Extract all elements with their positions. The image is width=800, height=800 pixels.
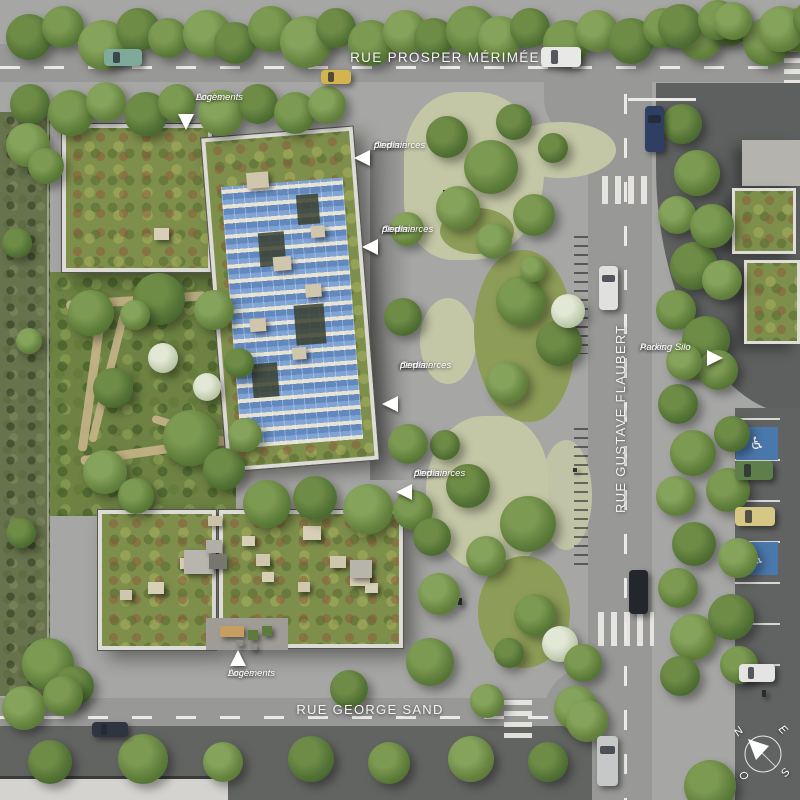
- tree: [10, 84, 50, 124]
- tree: [2, 228, 32, 258]
- tree: [288, 736, 334, 782]
- compass-rose: N E S O: [738, 729, 788, 779]
- tree: [486, 362, 528, 404]
- roof-void: [296, 193, 320, 225]
- tree: [496, 104, 532, 140]
- tree: [658, 4, 702, 48]
- tree: [343, 484, 393, 534]
- rooftop-structure: [206, 540, 222, 553]
- rooftop-structure: [292, 347, 307, 360]
- lane-dash-george-sand: [0, 716, 586, 719]
- tree: [466, 536, 506, 576]
- rooftop-structure: [310, 225, 325, 238]
- roof-void: [294, 303, 327, 345]
- access-arrow-icon: [354, 150, 370, 166]
- wheelchair-icon: ♿: [749, 434, 764, 454]
- tree: [662, 104, 702, 144]
- meadow-strip-west: [0, 112, 50, 696]
- crosswalk-george-sand: [504, 700, 532, 742]
- rooftop-structure: [330, 556, 346, 568]
- stop-line: [628, 98, 696, 101]
- tree: [656, 476, 696, 516]
- tree: [193, 373, 221, 401]
- tree: [148, 343, 178, 373]
- tree: [513, 194, 555, 236]
- tree: [708, 594, 754, 640]
- access-arrow-icon: [382, 396, 398, 412]
- rooftop-structure: [303, 526, 321, 540]
- tree: [243, 480, 291, 528]
- street-name-rue-gustave-flaubert: RUE GUSTAVE FLAUBERT: [613, 343, 629, 513]
- tree: [430, 430, 460, 460]
- car: [597, 736, 618, 786]
- tree: [194, 290, 234, 330]
- tree: [6, 518, 36, 548]
- car: [104, 49, 142, 66]
- tree: [406, 638, 454, 686]
- car-windshield: [748, 667, 754, 680]
- building-roof-southwest: [0, 776, 228, 800]
- rooftop-structure: [350, 560, 372, 578]
- access-arrow-icon: [396, 484, 412, 500]
- tree: [120, 300, 150, 330]
- tree: [660, 656, 700, 696]
- tree: [714, 2, 752, 40]
- tree: [28, 740, 72, 784]
- tree: [118, 478, 154, 514]
- rooftop-structure: [220, 626, 244, 637]
- access-arrow-icon: [178, 114, 194, 130]
- tree: [528, 742, 568, 782]
- tree: [238, 84, 278, 124]
- street-name-rue-george-sand: RUE GEORGE SAND: [296, 702, 444, 717]
- tree: [520, 256, 546, 282]
- rooftop-structure: [148, 582, 164, 594]
- street-name-rue-prosper-merimee: RUE PROSPER MÉRIMÉE: [310, 50, 580, 65]
- crosswalk-flaubert-north: [602, 176, 654, 204]
- rooftop-structure: [256, 554, 270, 566]
- tree: [658, 568, 698, 608]
- car-windshield: [101, 724, 107, 735]
- tree: [418, 573, 460, 615]
- rooftop-structure: [249, 318, 266, 332]
- tree: [672, 522, 716, 566]
- car: [321, 70, 351, 84]
- car-windshield: [744, 464, 751, 477]
- building-southwest-green-roof: [98, 510, 216, 650]
- silo-deck: [742, 140, 800, 186]
- car-windshield: [648, 115, 661, 122]
- car: [599, 266, 618, 310]
- tree: [28, 148, 64, 184]
- roof-void: [251, 362, 280, 398]
- crosswalk-flaubert-south: [598, 612, 654, 646]
- tree: [538, 133, 568, 163]
- car: [645, 106, 664, 152]
- tree: [308, 86, 346, 124]
- tree: [388, 424, 428, 464]
- access-arrow-icon: [362, 239, 378, 255]
- tree: [93, 368, 133, 408]
- tree: [702, 260, 742, 300]
- access-label-line: pied: [400, 360, 418, 372]
- car: [92, 722, 128, 737]
- tree: [86, 82, 126, 122]
- building-northwest-green-roof: [62, 124, 212, 272]
- access-label-line: Parking Silo: [640, 342, 691, 354]
- tree: [500, 496, 556, 552]
- rooftop-structure: [154, 228, 169, 240]
- tree: [536, 320, 582, 366]
- access-label-line: Logements: [196, 92, 243, 104]
- tree: [718, 538, 758, 578]
- car: [735, 507, 775, 526]
- tree: [464, 140, 518, 194]
- tree: [684, 760, 736, 800]
- solar-panel-array: [221, 177, 363, 448]
- tree: [436, 186, 480, 230]
- tree: [426, 116, 468, 158]
- tree: [43, 676, 83, 716]
- silo-green-roof: [744, 260, 800, 344]
- access-arrow-icon: [707, 350, 723, 366]
- tree: [203, 448, 245, 490]
- tree: [293, 476, 337, 520]
- rooftop-structure: [262, 572, 274, 582]
- rooftop-structure: [120, 590, 132, 600]
- tree: [470, 684, 504, 718]
- rooftop-structure: [273, 256, 292, 271]
- tree: [714, 416, 750, 452]
- rooftop-structure: [248, 630, 258, 640]
- tree: [16, 328, 42, 354]
- rooftop-structure: [305, 284, 322, 298]
- car-windshield: [328, 72, 333, 82]
- tree: [203, 742, 243, 782]
- tree: [496, 276, 546, 326]
- access-label-line: pied: [414, 468, 432, 480]
- tree: [494, 638, 524, 668]
- lane-dash-merimee: [0, 66, 782, 69]
- tree: [384, 298, 422, 336]
- tree: [564, 644, 602, 682]
- car-windshield: [745, 510, 752, 523]
- tree: [148, 18, 188, 58]
- tree: [224, 348, 254, 378]
- tree: [476, 223, 512, 259]
- rooftop-structure: [208, 516, 222, 526]
- rooftop-structure: [236, 640, 243, 646]
- car-windshield: [600, 746, 615, 754]
- tree: [670, 430, 716, 476]
- car: [735, 461, 773, 480]
- tree: [690, 204, 734, 248]
- access-label-line: pied: [382, 224, 400, 236]
- rooftop-structure: [242, 536, 255, 546]
- rooftop-terrace: [206, 618, 288, 650]
- tree: [68, 290, 114, 336]
- rooftop-structure: [250, 644, 257, 650]
- tree: [368, 742, 410, 784]
- rooftop-structure: [365, 583, 378, 593]
- tree: [658, 384, 698, 424]
- rooftop-structure: [573, 468, 577, 472]
- rooftop-structure: [762, 690, 766, 697]
- tree: [674, 150, 720, 196]
- tree: [228, 418, 262, 452]
- car-windshield: [113, 52, 120, 64]
- bike-racks: [574, 428, 588, 570]
- rooftop-structure: [246, 171, 269, 189]
- access-arrow-icon: [230, 650, 246, 666]
- car: [629, 570, 648, 614]
- silo-green-roof: [732, 188, 796, 254]
- tree: [551, 294, 585, 328]
- rooftop-structure: [262, 626, 272, 636]
- access-label-line: pied: [374, 140, 392, 152]
- rooftop-structure: [209, 554, 227, 569]
- rooftop-structure: [298, 582, 310, 592]
- site-plan-aerial-view: ♿ ♿ RUE PROSPER MÉRIMÉ: [0, 0, 800, 800]
- tree: [448, 736, 494, 782]
- tree: [413, 518, 451, 556]
- car-windshield: [632, 579, 645, 586]
- meadow-edge-line: [47, 112, 49, 696]
- car-windshield: [602, 275, 615, 282]
- tree: [118, 734, 168, 784]
- access-label-line: Logements: [228, 668, 275, 680]
- car: [739, 664, 775, 682]
- tree: [2, 686, 46, 730]
